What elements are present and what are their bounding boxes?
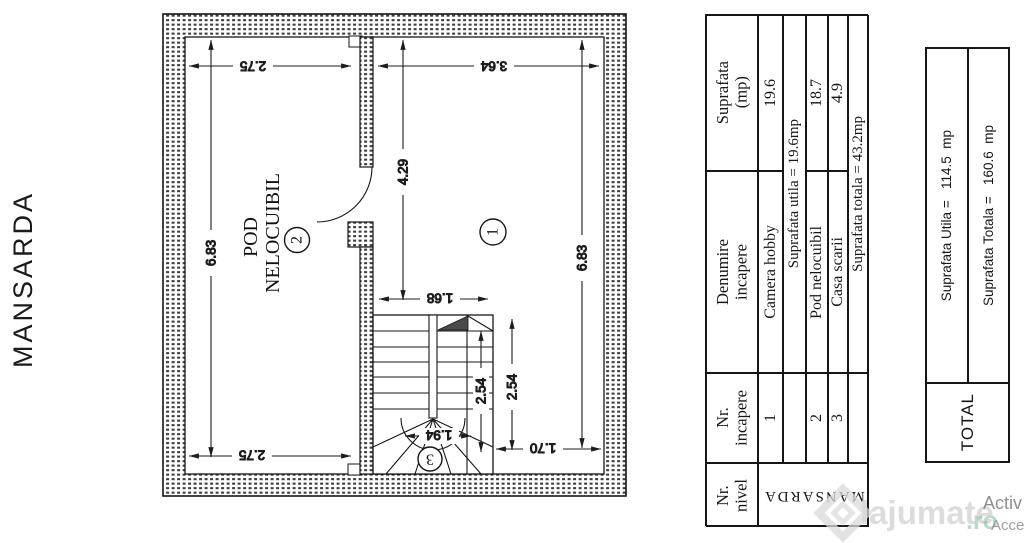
room-circle-1: 1 — [480, 219, 506, 245]
level-title-text: MANSARDA — [8, 191, 38, 368]
svg-text:3.64: 3.64 — [480, 59, 507, 74]
watermark-brand-tld: .ro — [966, 507, 998, 536]
partition-wall — [317, 37, 373, 474]
svg-text:2: 2 — [289, 236, 306, 244]
svg-text:4.29: 4.29 — [396, 159, 411, 185]
svg-text:2.75: 2.75 — [240, 59, 266, 74]
room-table-empty-2 — [848, 373, 869, 463]
room-circle-2: 2 — [285, 228, 310, 253]
svg-text:6.83: 6.83 — [204, 240, 219, 266]
room-table-header-nr-nivel: Nr. nivel — [706, 463, 758, 527]
watermark-corner-text-2: Accesa — [991, 517, 1024, 534]
room-table-header-suprafata: Suprafata (mp) — [706, 15, 758, 171]
dim-top-left: 2.75 — [189, 58, 351, 74]
room-table-level-cell: MANSARDA — [758, 463, 869, 527]
svg-text:1.94: 1.94 — [425, 428, 452, 443]
svg-text:2.54: 2.54 — [505, 373, 520, 400]
svg-text:1.68: 1.68 — [427, 291, 453, 306]
room-table-nr-3: 3 — [828, 373, 848, 463]
room-table-empty-1 — [783, 373, 806, 463]
total-table-utila-cell: Suprafata Utila = 114.5 mp — [926, 48, 968, 383]
room-table: Suprafata (mp) Denumire incapere Nr. inc… — [705, 14, 868, 526]
dim-stair-depth-outer: 2.54 — [504, 319, 520, 450]
dim-stair-width: 1.68 — [379, 291, 488, 307]
scanned-floorplan-page: { "page": { "left_label": "MANSARDA" }, … — [0, 0, 1024, 537]
svg-text:3: 3 — [426, 451, 434, 468]
room-table-summary-totala: Suprafata totala = 43.2mp — [848, 15, 869, 373]
svg-text:2.75: 2.75 — [239, 448, 265, 463]
dim-left-height: 6.83 — [203, 40, 219, 457]
room-table-nr-1: 1 — [758, 373, 783, 463]
watermark-corner-text-1: Activ — [983, 493, 1022, 514]
dim-top-right: 3.64 — [378, 58, 599, 74]
dim-hall-height: 4.29 — [395, 40, 411, 300]
room-table-name-1: Camera hobby — [758, 171, 783, 373]
svg-text:1: 1 — [485, 228, 502, 236]
room2-label-line1: POD — [240, 217, 262, 257]
room-table-area-2: 18.7 — [806, 15, 828, 171]
room-table-header-nr-incapere: Nr. incapere — [706, 373, 758, 463]
room-table-area-3: 4.9 — [828, 15, 848, 171]
dim-bottom-left: 2.75 — [189, 448, 351, 464]
room2-label-line2: NELOCUIBIL — [262, 173, 284, 293]
room-table-header-denumire: Denumire incapere — [706, 171, 758, 373]
watermark-brand: lajumate — [860, 494, 994, 532]
svg-text:2.54: 2.54 — [474, 377, 489, 404]
svg-text:6.83: 6.83 — [575, 245, 590, 271]
door-arc — [317, 167, 372, 222]
room-circle-3: 3 — [418, 447, 442, 471]
room-table-nr-2: 2 — [806, 373, 828, 463]
room-table-area-1: 19.6 — [758, 15, 783, 171]
room-table-name-2: Pod nelocuibil — [806, 171, 828, 373]
dim-right-height: 6.83 — [574, 40, 590, 448]
total-table-totala-cell: Suprafata Totala = 160.6 mp — [968, 48, 1009, 383]
room-table-name-3: Casa scarii — [828, 171, 848, 373]
level-title: MANSARDA — [2, 158, 44, 402]
room-table-summary-utila: Suprafata utila = 19.6mp — [783, 15, 806, 373]
total-table-title-cell: TOTAL — [926, 383, 1009, 462]
total-table: Suprafata Utila = 114.5 mp Suprafata Tot… — [925, 47, 1010, 463]
floorplan-drawing: 2.75 3.64 4.29 6.83 6.83 1.68 — [155, 8, 633, 506]
svg-text:1.70: 1.70 — [530, 441, 556, 456]
